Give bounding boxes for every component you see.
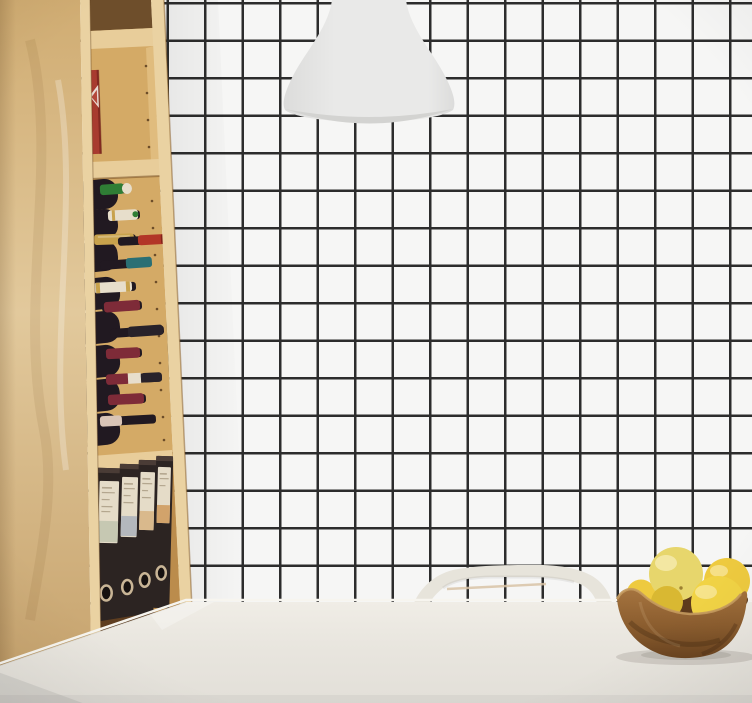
- scene-render: [0, 0, 752, 703]
- scene-canvas: [0, 0, 752, 703]
- vignette-overlay: [0, 0, 752, 703]
